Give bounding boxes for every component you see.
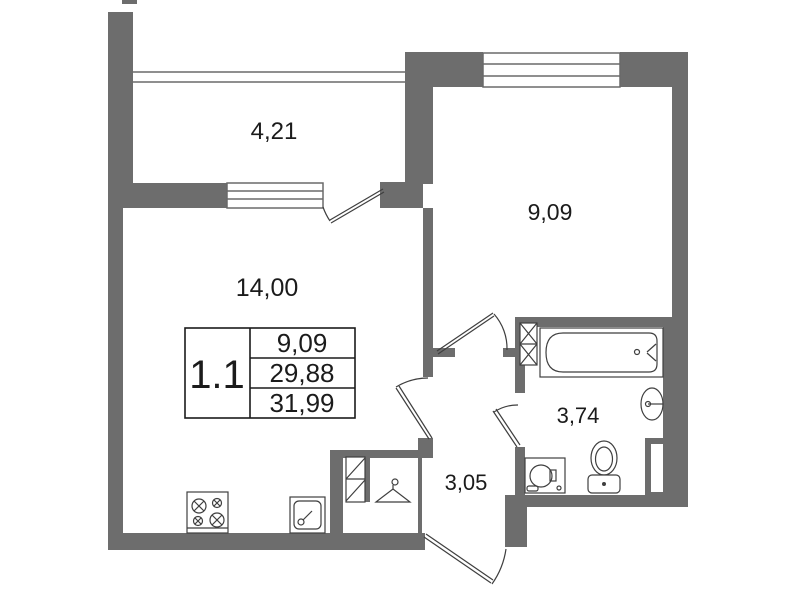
vent-shaft-closet-icon: [346, 457, 365, 502]
info-row-living-area: 9,09: [277, 328, 328, 358]
wall-top-block-right: [620, 52, 688, 87]
room-label-living-kitchen: 14,00: [236, 274, 299, 302]
wall-closet-left: [330, 450, 343, 535]
room-label-bedroom: 9,09: [528, 199, 573, 225]
info-row-total-area: 31,99: [269, 388, 334, 418]
floor-plan: 1.1 9,09 29,88 31,99 4,21 9,09 14,00 3,7…: [0, 0, 799, 600]
bathroom-door: [493, 405, 520, 447]
wall-top-block-mid: [405, 52, 483, 87]
wall-shaft-divider: [365, 457, 370, 502]
wall-tick-top: [122, 0, 137, 4]
living-room-window: [227, 183, 323, 208]
bedroom-window: [483, 53, 620, 87]
niche-inset: [651, 444, 663, 492]
wall-bedroom-bathroom: [515, 317, 688, 327]
washing-machine-icon: [525, 458, 565, 493]
entrance-door: [424, 534, 506, 584]
kitchen-sink-icon: [290, 497, 325, 533]
stove-icon: [187, 492, 228, 533]
wall-balcony-living: [110, 183, 227, 208]
wall-bottom-outer: [108, 533, 425, 550]
wall-left-outer: [108, 183, 123, 550]
wall-bedroom-right: [672, 85, 688, 320]
wall-pillar-top-left: [108, 12, 133, 183]
wall-closet-right-corner: [418, 438, 433, 458]
room-label-hallway: 3,05: [445, 470, 488, 495]
unit-number: 1.1: [189, 353, 245, 397]
wardrobe-hanger-icon: [376, 479, 410, 502]
floor-plan-page: 1.1 9,09 29,88 31,99 4,21 9,09 14,00 3,7…: [0, 0, 799, 600]
wall-bathroom-left-lower: [515, 447, 525, 497]
balcony-door: [323, 189, 384, 223]
wash-basin-icon: [641, 388, 663, 420]
wall-entry-right-jamb: [505, 495, 527, 547]
vent-shaft-bathroom-icon: [520, 323, 537, 365]
wall-closet-right-thin: [418, 458, 422, 535]
bathtub-icon: [540, 328, 663, 377]
info-row-area: 29,88: [269, 358, 334, 388]
toilet-icon: [588, 441, 620, 493]
room-label-balcony: 4,21: [251, 118, 298, 145]
wall-living-bedroom-divider: [423, 208, 433, 377]
room-label-bathroom: 3,74: [557, 403, 600, 428]
bedroom-door: [437, 313, 507, 354]
wall-bathroom-bottom: [518, 495, 688, 507]
living-room-door: [396, 378, 432, 439]
wall-balcony-door-block: [380, 182, 423, 208]
info-table: 1.1 9,09 29,88 31,99: [185, 328, 355, 418]
